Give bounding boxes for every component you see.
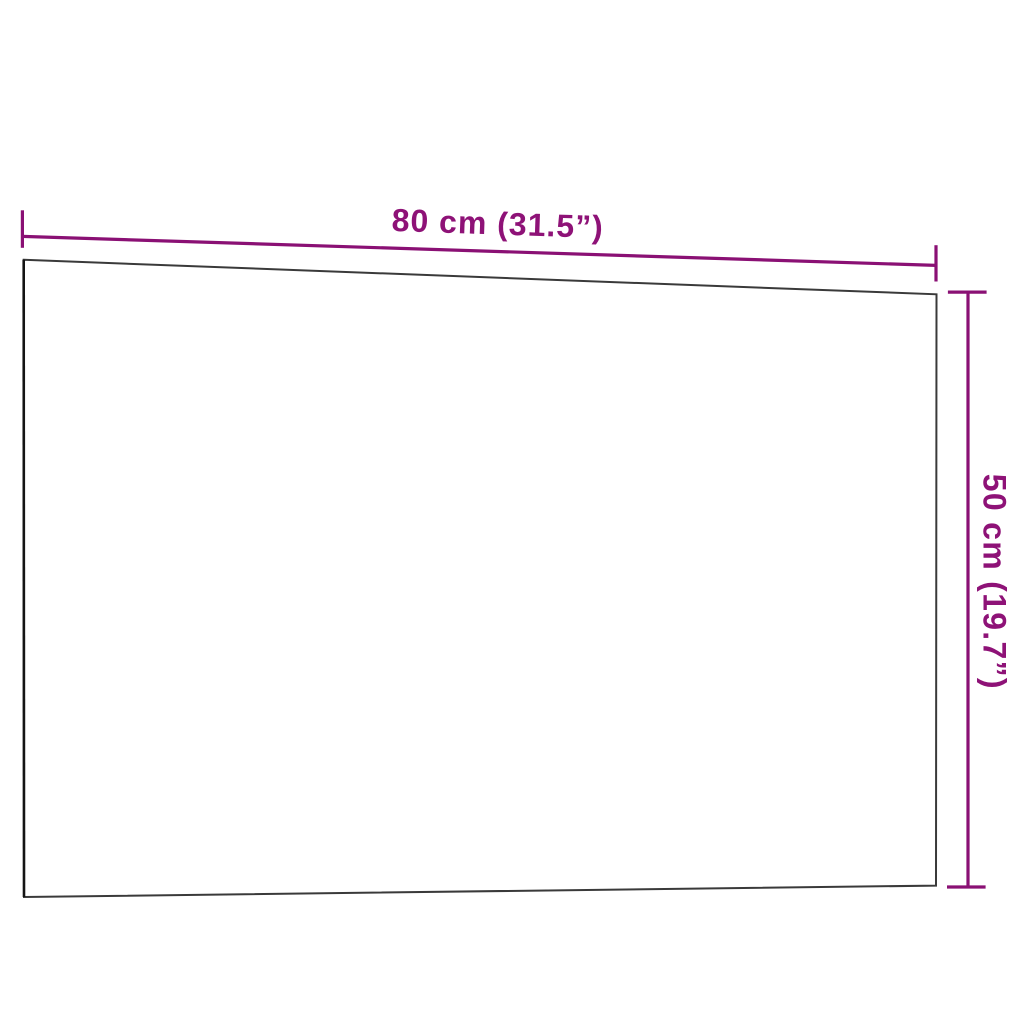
svg-text:50 cm (19.7”): 50 cm (19.7”) xyxy=(977,474,1013,690)
svg-text:80 cm (31.5”): 80 cm (31.5”) xyxy=(391,202,604,245)
